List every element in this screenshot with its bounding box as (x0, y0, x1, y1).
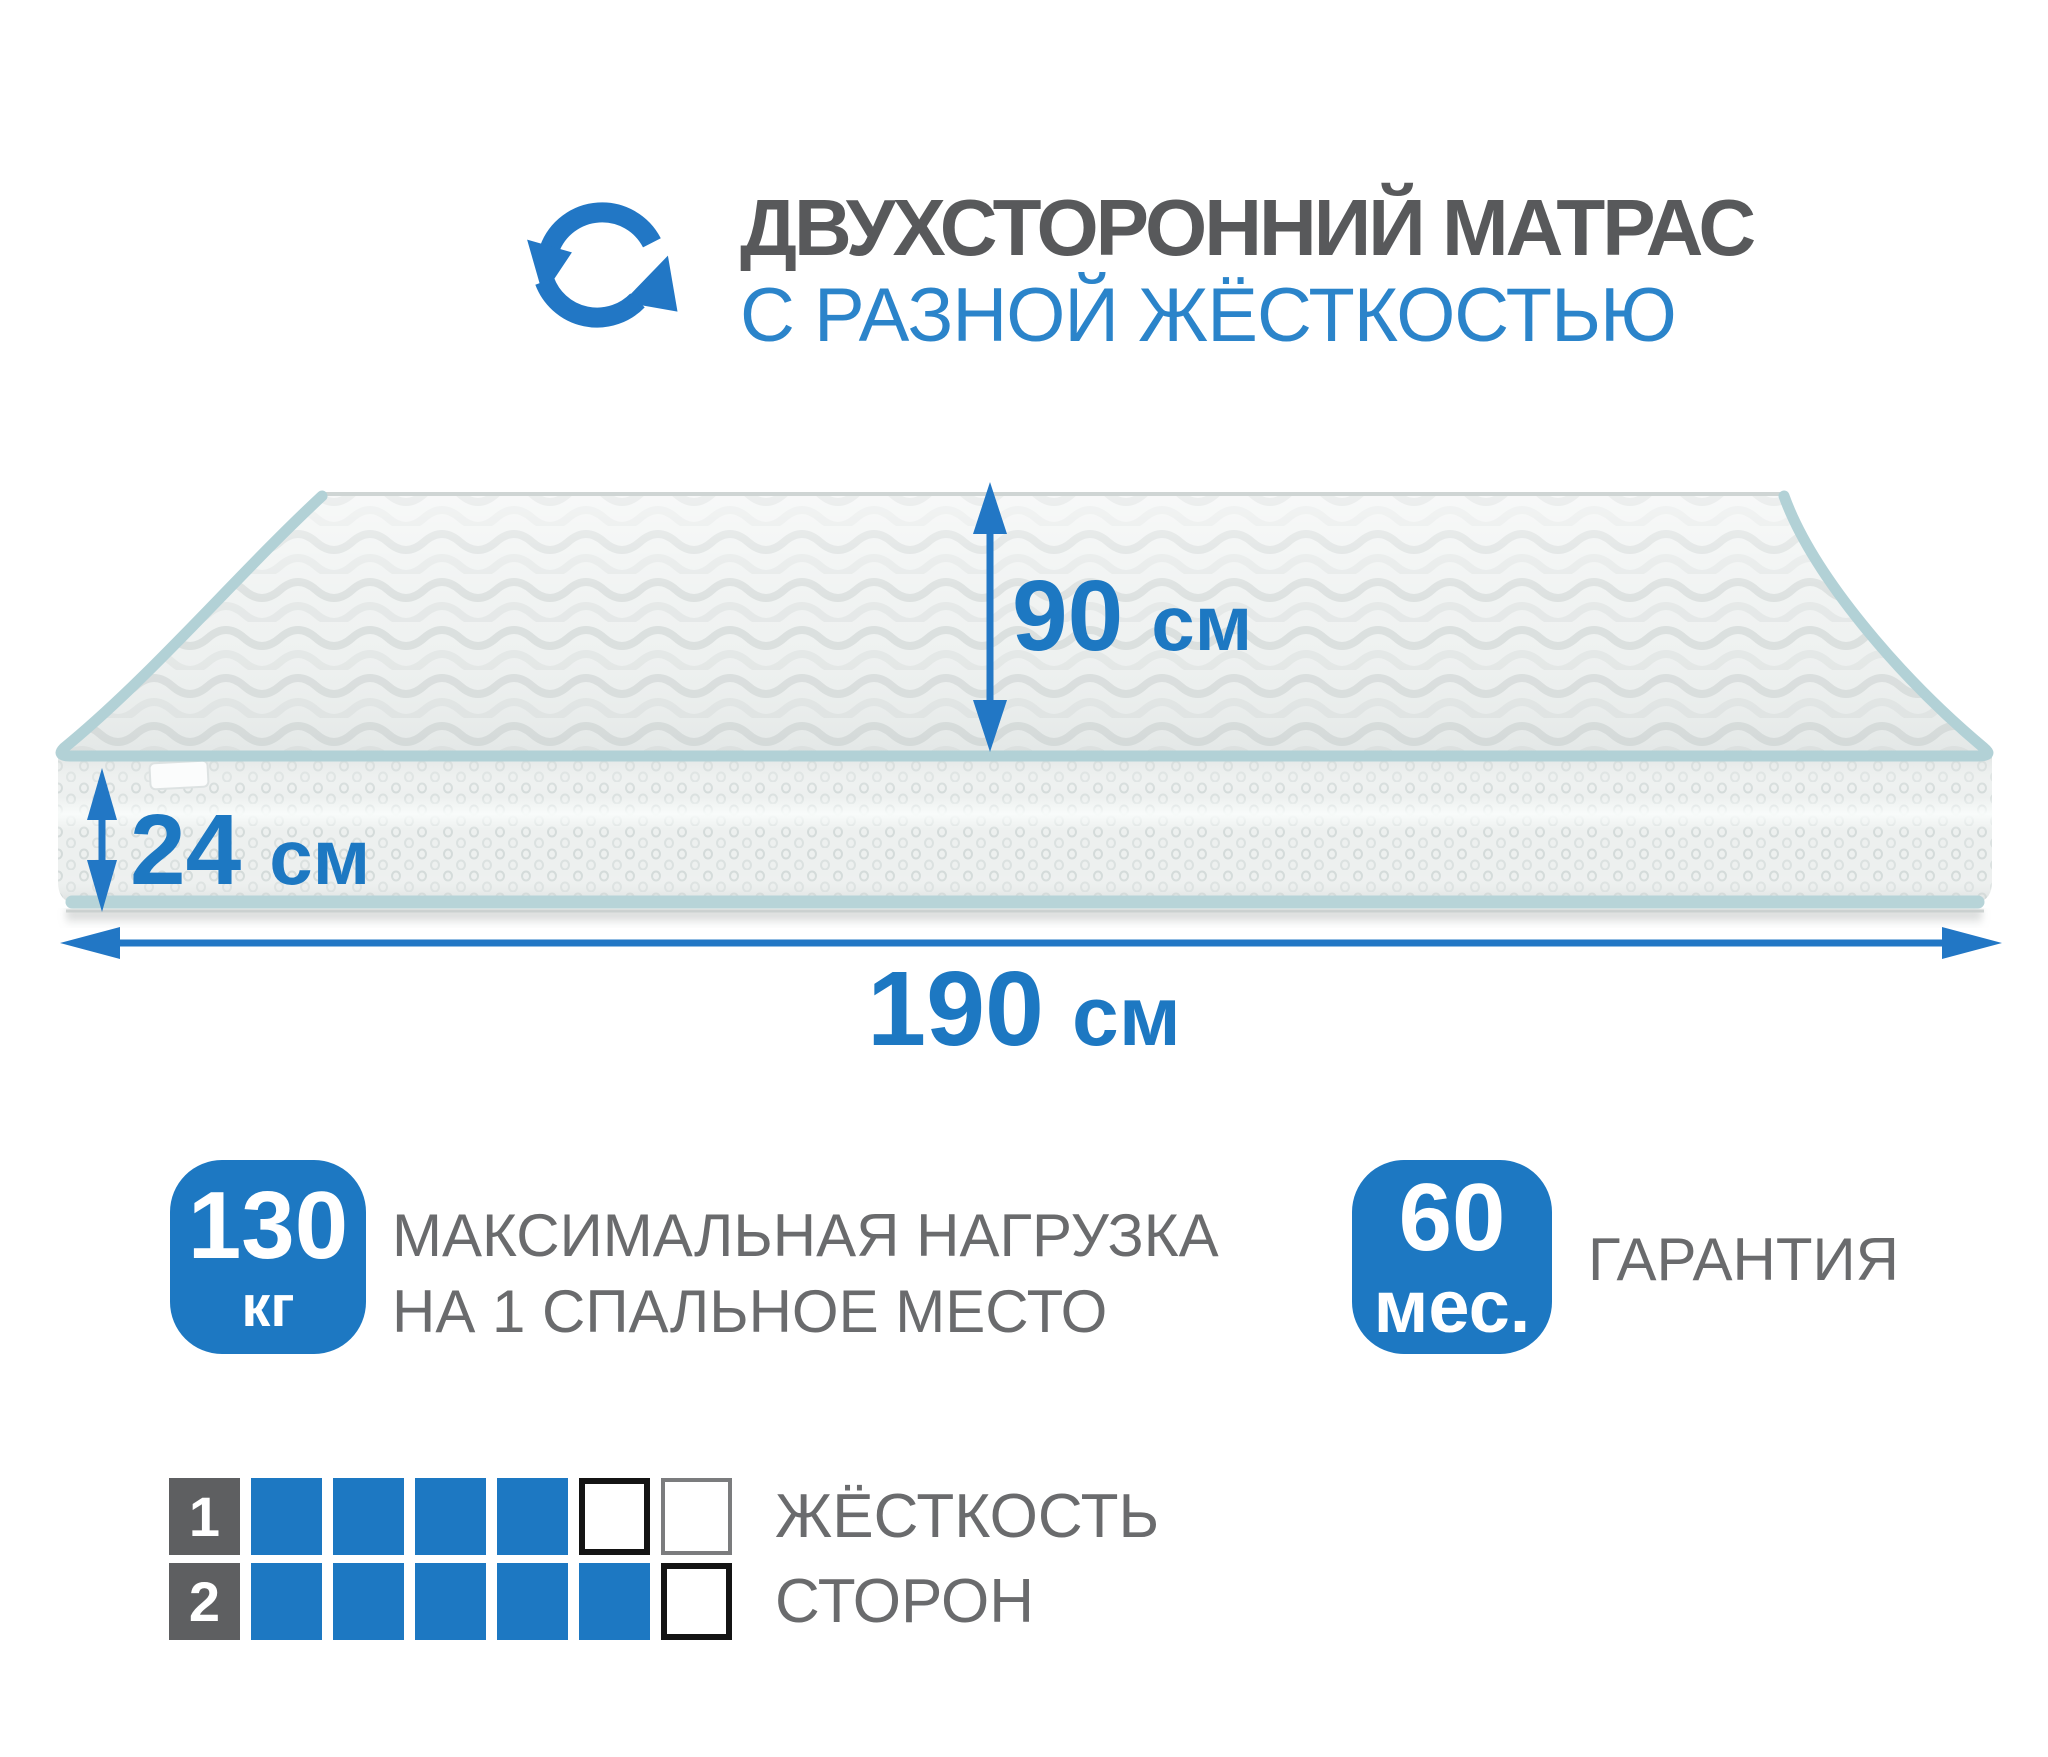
mattress-label-tag (149, 761, 208, 790)
rotate-arrows-icon (515, 182, 680, 342)
width-unit: см (1072, 969, 1181, 1063)
max-load-value: 130 (188, 1178, 348, 1274)
infographic: ДВУХСТОРОННИЙ МАТРАС С РАЗНОЙ ЖЁСТКОСТЬЮ (0, 0, 2048, 1757)
warranty-caption: ГАРАНТИЯ (1588, 1222, 1899, 1298)
max-load-caption-line2: НА 1 СПАЛЬНОЕ МЕСТО (392, 1274, 1219, 1350)
hardness-cell-filled (415, 1563, 486, 1640)
max-load-caption: МАКСИМАЛЬНАЯ НАГРУЗКА НА 1 СПАЛЬНОЕ МЕСТ… (392, 1198, 1219, 1349)
height-dimension-label: 24см (130, 800, 370, 900)
hardness-cell-outline-light (661, 1478, 732, 1555)
hardness-cell-outline-dark (579, 1478, 650, 1555)
max-load-caption-line1: МАКСИМАЛЬНАЯ НАГРУЗКА (392, 1198, 1219, 1274)
warranty-badge: 60 мес. (1352, 1160, 1552, 1354)
hardness-label-line2: СТОРОН (775, 1563, 1034, 1640)
page-title: ДВУХСТОРОННИЙ МАТРАС (740, 188, 1753, 268)
hardness-scale: 12 (169, 1478, 732, 1640)
hardness-cell-filled (497, 1478, 568, 1555)
max-load-badge: 130 кг (170, 1160, 366, 1354)
warranty-unit: мес. (1374, 1270, 1531, 1344)
hardness-cell-filled (333, 1478, 404, 1555)
side-number-square: 2 (169, 1563, 240, 1640)
width-value: 190 (867, 950, 1044, 1068)
hardness-cell-filled (579, 1563, 650, 1640)
depth-value: 90 (1012, 560, 1123, 672)
width-dimension-label: 190см (0, 956, 2048, 1062)
hardness-cell-filled (333, 1563, 404, 1640)
hardness-cell-filled (251, 1563, 322, 1640)
hardness-row: 1 (169, 1478, 732, 1555)
hardness-cell-filled (497, 1563, 568, 1640)
height-value: 24 (130, 794, 241, 906)
depth-unit: см (1151, 579, 1252, 667)
warranty-value: 60 (1399, 1170, 1506, 1266)
hardness-label-line1: ЖЁСТКОСТЬ (775, 1478, 1159, 1555)
height-unit: см (269, 813, 370, 901)
hardness-cell-filled (415, 1478, 486, 1555)
hardness-cell-outline-dark (661, 1563, 732, 1640)
max-load-unit: кг (241, 1278, 294, 1336)
depth-dimension-label: 90см (1012, 566, 1252, 666)
hardness-cell-filled (251, 1478, 322, 1555)
side-number-square: 1 (169, 1478, 240, 1555)
mattress-illustration (0, 430, 2048, 1020)
hardness-row: 2 (169, 1563, 732, 1640)
page-subtitle: С РАЗНОЙ ЖЁСТКОСТЬЮ (740, 278, 1676, 354)
